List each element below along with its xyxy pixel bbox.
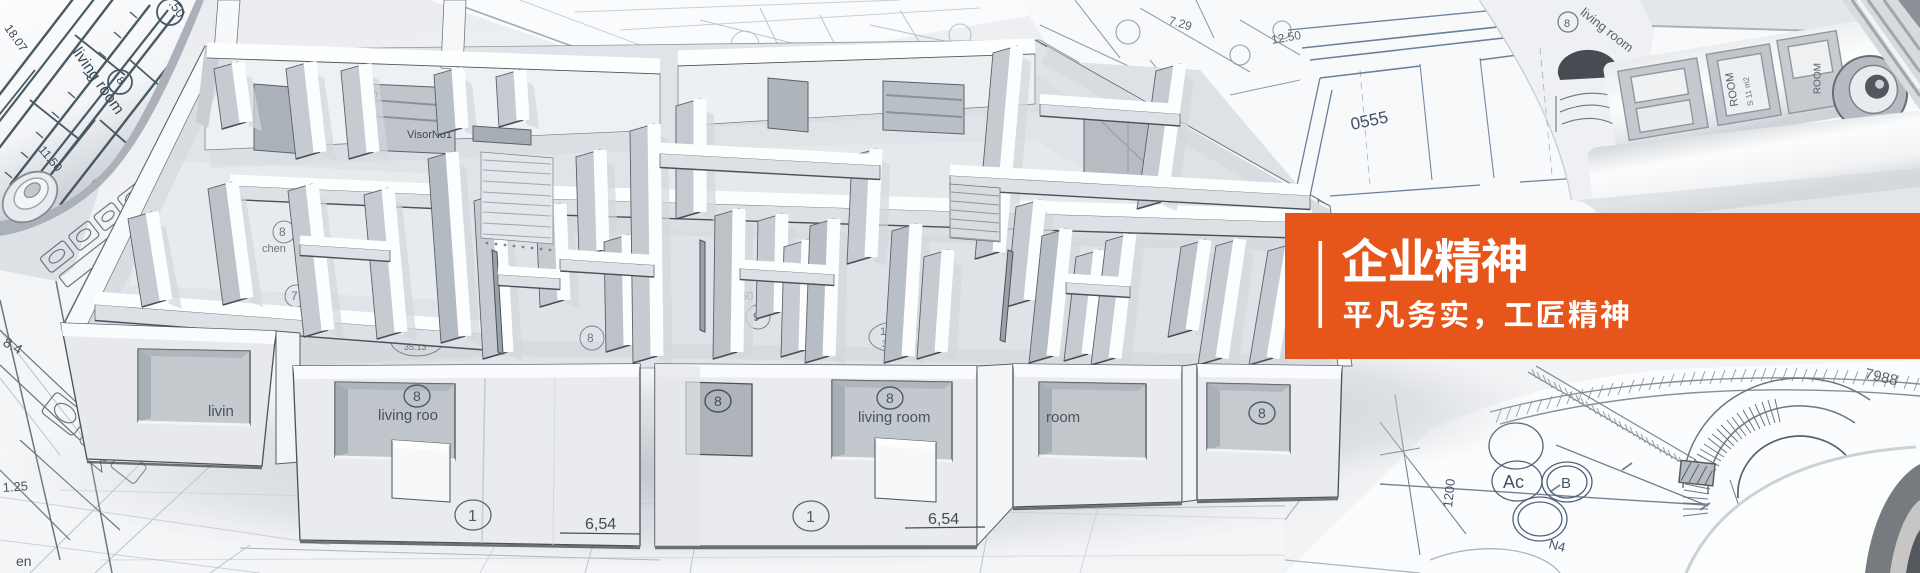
svg-text:8: 8	[1564, 18, 1570, 30]
svg-text:1: 1	[806, 509, 815, 526]
svg-text:B: B	[1561, 475, 1571, 492]
svg-text:room: room	[1046, 409, 1080, 426]
svg-text:8: 8	[413, 388, 421, 404]
svg-text:6,54: 6,54	[928, 511, 959, 528]
svg-text:Ac: Ac	[1503, 472, 1524, 492]
svg-text:8: 8	[714, 393, 722, 409]
svg-text:living room: living room	[858, 409, 931, 426]
svg-text:1: 1	[468, 508, 477, 525]
svg-text:8: 8	[1258, 405, 1266, 421]
svg-text:1200: 1200	[1440, 478, 1458, 508]
svg-text:ROOM: ROOM	[1812, 63, 1823, 94]
svg-text:en: en	[16, 553, 32, 569]
svg-text:8: 8	[886, 390, 894, 406]
svg-text:6,54: 6,54	[585, 516, 616, 533]
svg-text:8: 8	[279, 225, 286, 239]
svg-text:livin: livin	[208, 403, 234, 420]
svg-text:living roo: living roo	[378, 407, 438, 424]
svg-text:7: 7	[291, 289, 298, 303]
svg-text:8: 8	[587, 331, 594, 345]
svg-text:chen: chen	[262, 243, 286, 255]
